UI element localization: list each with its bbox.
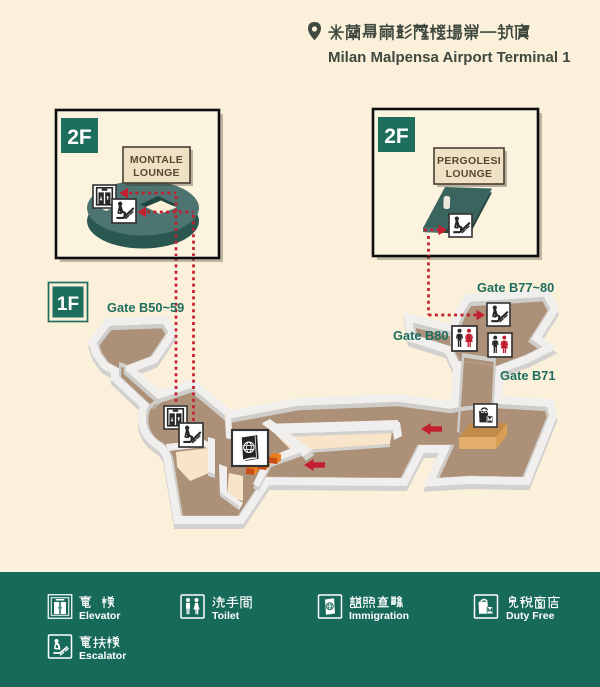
- svg-text:2F: 2F: [67, 126, 92, 149]
- svg-text:Immigration: Immigration: [349, 610, 409, 622]
- svg-text:2F: 2F: [384, 125, 409, 148]
- svg-text:1F: 1F: [57, 294, 79, 315]
- svg-text:Gate B77~80: Gate B77~80: [477, 280, 554, 295]
- svg-text:Gate B50~59: Gate B50~59: [107, 300, 184, 315]
- svg-text:LOUNGE: LOUNGE: [133, 167, 180, 179]
- svg-text:PERGOLESI: PERGOLESI: [437, 155, 501, 167]
- svg-text:Escalator: Escalator: [79, 650, 126, 662]
- svg-text:Elevator: Elevator: [79, 610, 120, 622]
- svg-text:LOUNGE: LOUNGE: [446, 168, 493, 180]
- svg-text:Milan Malpensa Airport Termina: Milan Malpensa Airport Terminal 1: [328, 49, 571, 66]
- svg-text:Duty Free: Duty Free: [506, 610, 555, 622]
- svg-text:MONTALE: MONTALE: [130, 154, 183, 166]
- svg-text:Toilet: Toilet: [212, 610, 240, 622]
- svg-text:Gate B80: Gate B80: [393, 328, 448, 343]
- svg-text:Gate B71: Gate B71: [500, 368, 555, 383]
